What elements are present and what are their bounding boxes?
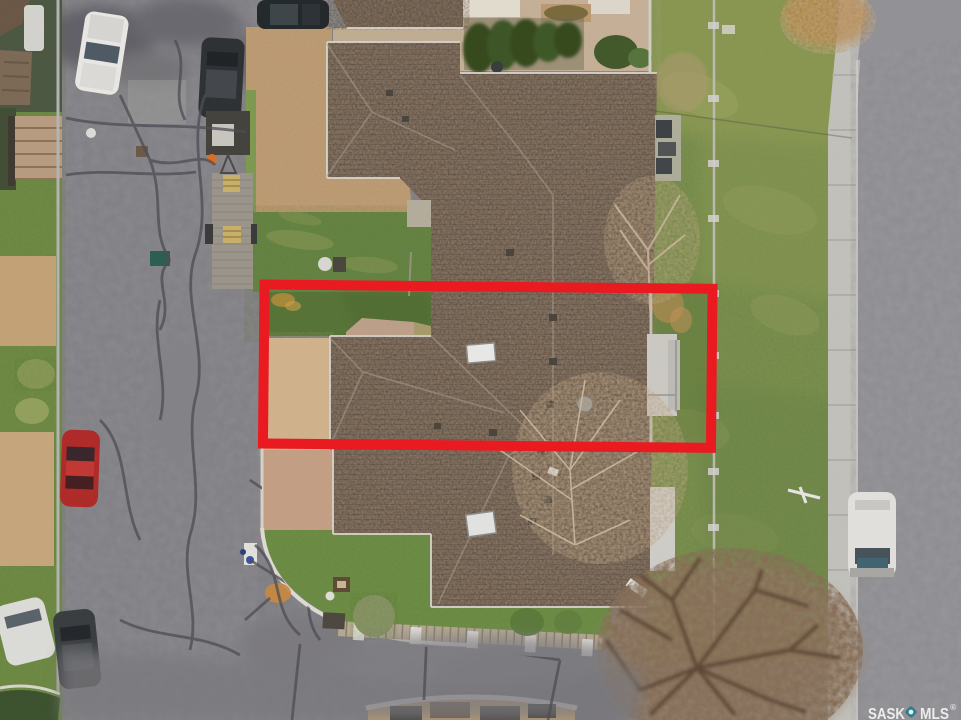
- svg-text:®: ®: [950, 702, 957, 712]
- svg-text:MLS: MLS: [920, 706, 949, 720]
- svg-text:SASK: SASK: [868, 706, 905, 720]
